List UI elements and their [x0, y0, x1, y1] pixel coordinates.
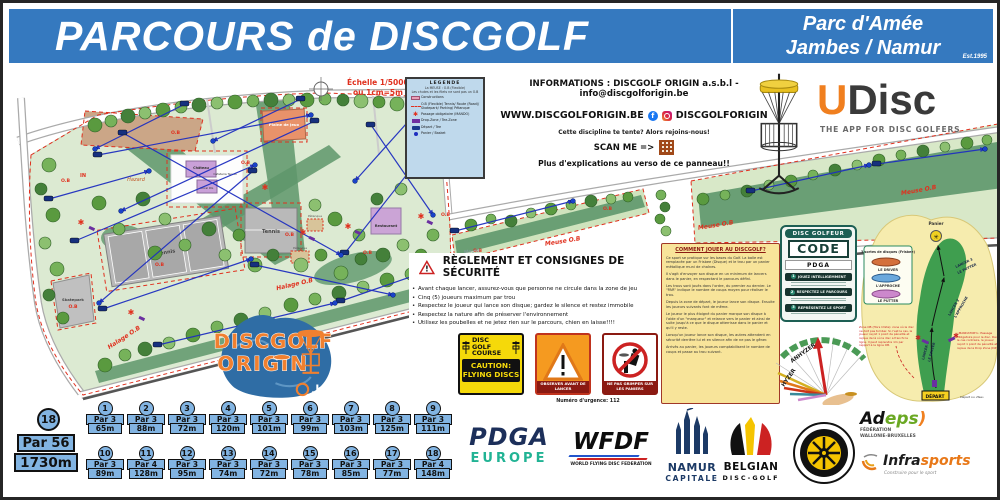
page-title: PARCOURS de DISCGOLF — [9, 13, 731, 60]
code-item: 2RESPECTEZ LE PARCOURS — [785, 288, 852, 296]
svg-text:O.B: O.B — [241, 160, 251, 166]
discgolf-origin-logo: DISCGOLF ORIGIN .be — [213, 296, 338, 406]
constructions-swatch — [410, 96, 421, 100]
hole-badge: 11Par 4128m — [126, 446, 166, 479]
svg-text:✱: ✱ — [78, 218, 85, 227]
header-location: Parc d'Amée Jambes / Namur Est.1995 — [731, 9, 993, 63]
location-line2: Jambes / Namur — [733, 36, 993, 60]
svg-text:3 sortes de disques (Frisbee): 3 sortes de disques (Frisbee) — [861, 250, 916, 254]
exclamation-triangle-icon — [543, 343, 583, 381]
svg-text:Pétanque: Pétanque — [308, 214, 322, 218]
disc-golf-course-sign: DISC GOLFCOURSE CAUTION:FLYING DISCS — [458, 333, 524, 395]
hole-demo-diagram: ✳ Panier 3 sortes de disques (Frisbee) L… — [856, 208, 1000, 406]
hole-badge: 16Par 385m — [331, 446, 371, 479]
svg-text:Skatepark: Skatepark — [62, 297, 84, 302]
legend-item-basket: Panier / Basket — [410, 132, 480, 136]
code-item: 1JOUEZ INTELLIGEMMENT — [785, 273, 852, 281]
infrasports-logo: Infrasports Construire pour le sport — [860, 451, 1000, 476]
legend-item-dropzone: Drop-Zone / Tee-Zone — [410, 119, 480, 123]
udisc-logo: UDisc — [817, 79, 936, 121]
svg-text:O.B: O.B — [155, 262, 165, 268]
map-scale-line2: ou 1cm=5m — [353, 88, 403, 97]
no-climbing-label: NE PAS GRIMPER SUR LES PANIERS — [604, 381, 656, 393]
svg-text:✱: ✱ — [300, 228, 307, 237]
dropzone-swatch — [410, 119, 421, 123]
svg-text:.be: .be — [311, 383, 331, 397]
how-to-play-paragraph: Il s'agit d'envoyer son disque en un min… — [666, 272, 775, 281]
mini-basket-icon — [462, 341, 470, 354]
hole-badge: 9Par 3111m — [413, 401, 453, 434]
code-badge-title: CODE — [788, 240, 849, 258]
qr-code — [659, 140, 674, 155]
svg-text:LE PUTTER: LE PUTTER — [878, 299, 899, 303]
hole-badge: 13Par 374m — [208, 446, 248, 479]
warning-signs-row: DISC GOLFCOURSE CAUTION:FLYING DISCS OBS… — [458, 333, 668, 403]
hole-badge: 3Par 372m — [167, 401, 207, 434]
svg-text:O.B: O.B — [441, 212, 451, 218]
how-to-play-paragraph: Les trous sont joués dans l'ordre, du pr… — [666, 284, 775, 298]
mini-basket-icon — [512, 341, 520, 354]
how-to-play-box: COMMENT JOUER AU DISCGOLF? Ce sport se p… — [661, 243, 780, 404]
hole-badge: 7Par 3103m — [331, 401, 371, 434]
hole-badge: 14Par 372m — [249, 446, 289, 479]
hole-badge: 10Par 389m — [85, 446, 125, 479]
hole-badge: 17Par 377m — [372, 446, 412, 479]
svg-text:O.B: O.B — [68, 304, 78, 310]
pdga-label: PDGA — [785, 260, 852, 270]
svg-text:O.B: O.B — [363, 250, 373, 256]
svg-text:✱: ✱ — [345, 222, 352, 231]
location-line1: Parc d'Amée — [733, 12, 993, 36]
pdga-europe-logo: PDGA EUROPE — [459, 425, 559, 466]
basket-dot-icon — [410, 132, 421, 136]
svg-text:Plaine de jeux: Plaine de jeux — [269, 122, 300, 127]
disc-basket-icon — [753, 69, 805, 197]
how-to-play-paragraph: Arrivés au panier, les joueurs comptabil… — [666, 345, 775, 354]
svg-text:✳: ✳ — [933, 234, 938, 241]
rule-item: Cinq (5) joueurs maximum par trou — [411, 294, 667, 303]
map-scale-line1: Échelle 1/5000 — [347, 78, 409, 87]
no-climbing-sign: NE PAS GRIMPER SUR LES PANIERS — [602, 333, 658, 395]
hole-badge: 2Par 388m — [126, 401, 166, 434]
mando-icon: ✱ — [410, 113, 421, 117]
facebook-icon: f — [648, 111, 658, 121]
disc-golfer-code-badge: DISC GOLFEUR CODE PDGA 1JOUEZ INTELLIGEM… — [780, 225, 857, 322]
established-label: Est.1995 — [963, 54, 987, 61]
legend-item-constructions: Constructions — [410, 96, 480, 100]
udisc-tagline: THE APP FOR DISC GOLFERS — [820, 125, 960, 134]
rule-item: Respectez le joueur qui lance son disque… — [411, 302, 667, 311]
legend-item-ob: O.B (Flexible) Tennis/ Route (Road)/ Ska… — [410, 103, 480, 111]
tee-swatch — [410, 126, 421, 130]
info-block: INFORMATIONS : DISCGOLF ORIGIN a.s.b.l -… — [489, 79, 779, 168]
svg-text:✱: ✱ — [915, 334, 921, 342]
svg-text:O.B: O.B — [603, 206, 613, 212]
svg-text:L'APPROCHE: L'APPROCHE — [876, 284, 901, 288]
hole-badge: 18Par 4148m — [413, 446, 453, 479]
ob-note: Zone OB (Hors limite): zone où le disc n… — [859, 326, 915, 348]
scan-row: SCAN ME => — [489, 140, 779, 155]
hole-badge: 12Par 395m — [167, 446, 207, 479]
rule-item: Utilisez les poubelles et ne jetez rien … — [411, 319, 667, 328]
svg-text:✱: ✱ — [128, 308, 135, 317]
observe-sign-label: OBSERVER AVANT DE LANCER — [537, 381, 589, 393]
code-item: 3REPRÉSENTEZ LE SPORT — [785, 304, 852, 312]
legend-item-tee: Départ / Tee — [410, 126, 480, 130]
svg-text:Château: Château — [193, 166, 209, 170]
hole-badge: 8Par 3125m — [372, 401, 412, 434]
svg-text:Départ ou «Tee»: Départ ou «Tee» — [960, 395, 984, 399]
svg-text:!: ! — [425, 263, 429, 273]
warning-triangle-icon: ! — [419, 260, 435, 275]
hole-badge: 1Par 365m — [85, 401, 125, 434]
udisc-logo-block: UDisc THE APP FOR DISC GOLFERS — [753, 69, 998, 199]
hole-badge: 4Par 3120m — [208, 401, 248, 434]
observe-before-throw-sign: OBSERVER AVANT DE LANCER — [535, 333, 591, 395]
map-legend: LEGENDE La MEUSE : O.B (Flexible) Les ch… — [405, 77, 485, 179]
instagram-icon — [662, 111, 672, 121]
scan-me-label: SCAN ME => — [594, 143, 654, 153]
rules-title-row: ! RÈGLEMENT ET CONSIGNES DE SÉCURITÉ — [411, 255, 667, 279]
mando-note: «MANDATORY»: Passage obligatoire pour le… — [957, 332, 1000, 350]
how-to-play-paragraph: Ce sport se pratique sur les bases du Go… — [666, 256, 775, 270]
citadel-icon — [670, 408, 714, 456]
info-web-line: WWW.DISCGOLFORIGIN.BE f DISCGOLFORIGIN — [489, 110, 779, 121]
info-tagline: Cette discipline te tente? Alors rejoins… — [489, 129, 779, 136]
rule-item: Avant chaque lancer, assurez-vous que pe… — [411, 285, 667, 294]
wfdf-logo: WFDF WORLD FLYING DISC FEDERATION — [561, 431, 661, 467]
hole-badge: 15Par 378m — [290, 446, 330, 479]
svg-text:Restaurant: Restaurant — [375, 224, 398, 228]
hole-badge: 6Par 399m — [290, 401, 330, 434]
throw-angle-diagram: ANHYZER HYZER — [768, 323, 868, 405]
svg-text:✱: ✱ — [418, 212, 425, 221]
namur-capitale-logo: NAMUR CAPITALE — [663, 408, 721, 483]
svg-text:✱: ✱ — [262, 183, 269, 192]
svg-text:Hazard: Hazard — [127, 177, 146, 183]
rules-list: Avant chaque lancer, assurez-vous que pe… — [411, 285, 667, 328]
how-to-play-paragraph: Le joueur le plus éloigné du panier marq… — [666, 312, 775, 330]
info-contact-line: INFORMATIONS : DISCGOLF ORIGIN a.s.b.l -… — [489, 79, 779, 99]
wfdf-stripes — [569, 455, 653, 460]
how-to-play-paragraph: Lorsqu'un joueur lance son disque, les a… — [666, 333, 775, 342]
ob-dash-swatch — [410, 106, 421, 107]
belgian-crown-icon — [726, 415, 776, 457]
svg-text:Panier: Panier — [928, 221, 944, 226]
svg-text:O.B: O.B — [285, 232, 295, 238]
how-to-play-title: COMMENT JOUER AU DISCGOLF? — [666, 247, 775, 253]
svg-text:O.B: O.B — [61, 178, 71, 184]
federation-circle-logo — [792, 421, 856, 485]
caution-label: CAUTION:FLYING DISCS — [462, 359, 520, 382]
rules-section: ! RÈGLEMENT ET CONSIGNES DE SÉCURITÉ Ava… — [409, 253, 669, 332]
svg-text:IN: IN — [80, 173, 86, 179]
hole-badge: 5Par 3101m — [249, 401, 289, 434]
rule-item: Respectez la nature afin de préserver l'… — [411, 311, 667, 320]
header: PARCOURS de DISCGOLF Parc d'Amée Jambes … — [9, 9, 993, 63]
no-climbing-icon — [609, 341, 651, 381]
legend-note2: Les chutes et les filets ne sont pas un … — [410, 90, 480, 94]
infrasports-arcs-icon — [860, 451, 880, 471]
belgian-disc-golf-logo: BELGIAN DISC-GOLF — [722, 415, 780, 482]
legend-item-mando: ✱ Passage obligatoire (MANDO) — [410, 113, 480, 117]
svg-text:Tennis: Tennis — [262, 229, 280, 235]
rules-title: RÈGLEMENT ET CONSIGNES DE SÉCURITÉ — [443, 255, 667, 279]
how-to-play-paragraph: Depuis la zone de départ, le joueur lanc… — [666, 300, 775, 309]
svg-text:Pétanque: Pétanque — [293, 246, 307, 250]
website-url: WWW.DISCGOLFORIGIN.BE — [500, 110, 643, 121]
origin-disc-icon — [273, 355, 290, 360]
adeps-logo: Adeps) FÉDÉRATIONWALLONIE-BRUXELLES — [860, 411, 995, 439]
code-badge-top: DISC GOLFEUR — [785, 229, 852, 238]
poster-root: .ta{fill:#5a9a3f}.tb{fill:#76b25a}.tc{fi… — [0, 0, 1000, 500]
info-verso-line: Plus d'explications au verso de ce panne… — [489, 159, 779, 168]
svg-text:ORIGIN: ORIGIN — [217, 353, 309, 376]
svg-text:LE DRIVER: LE DRIVER — [878, 268, 898, 272]
svg-text:O.B: O.B — [171, 130, 181, 136]
